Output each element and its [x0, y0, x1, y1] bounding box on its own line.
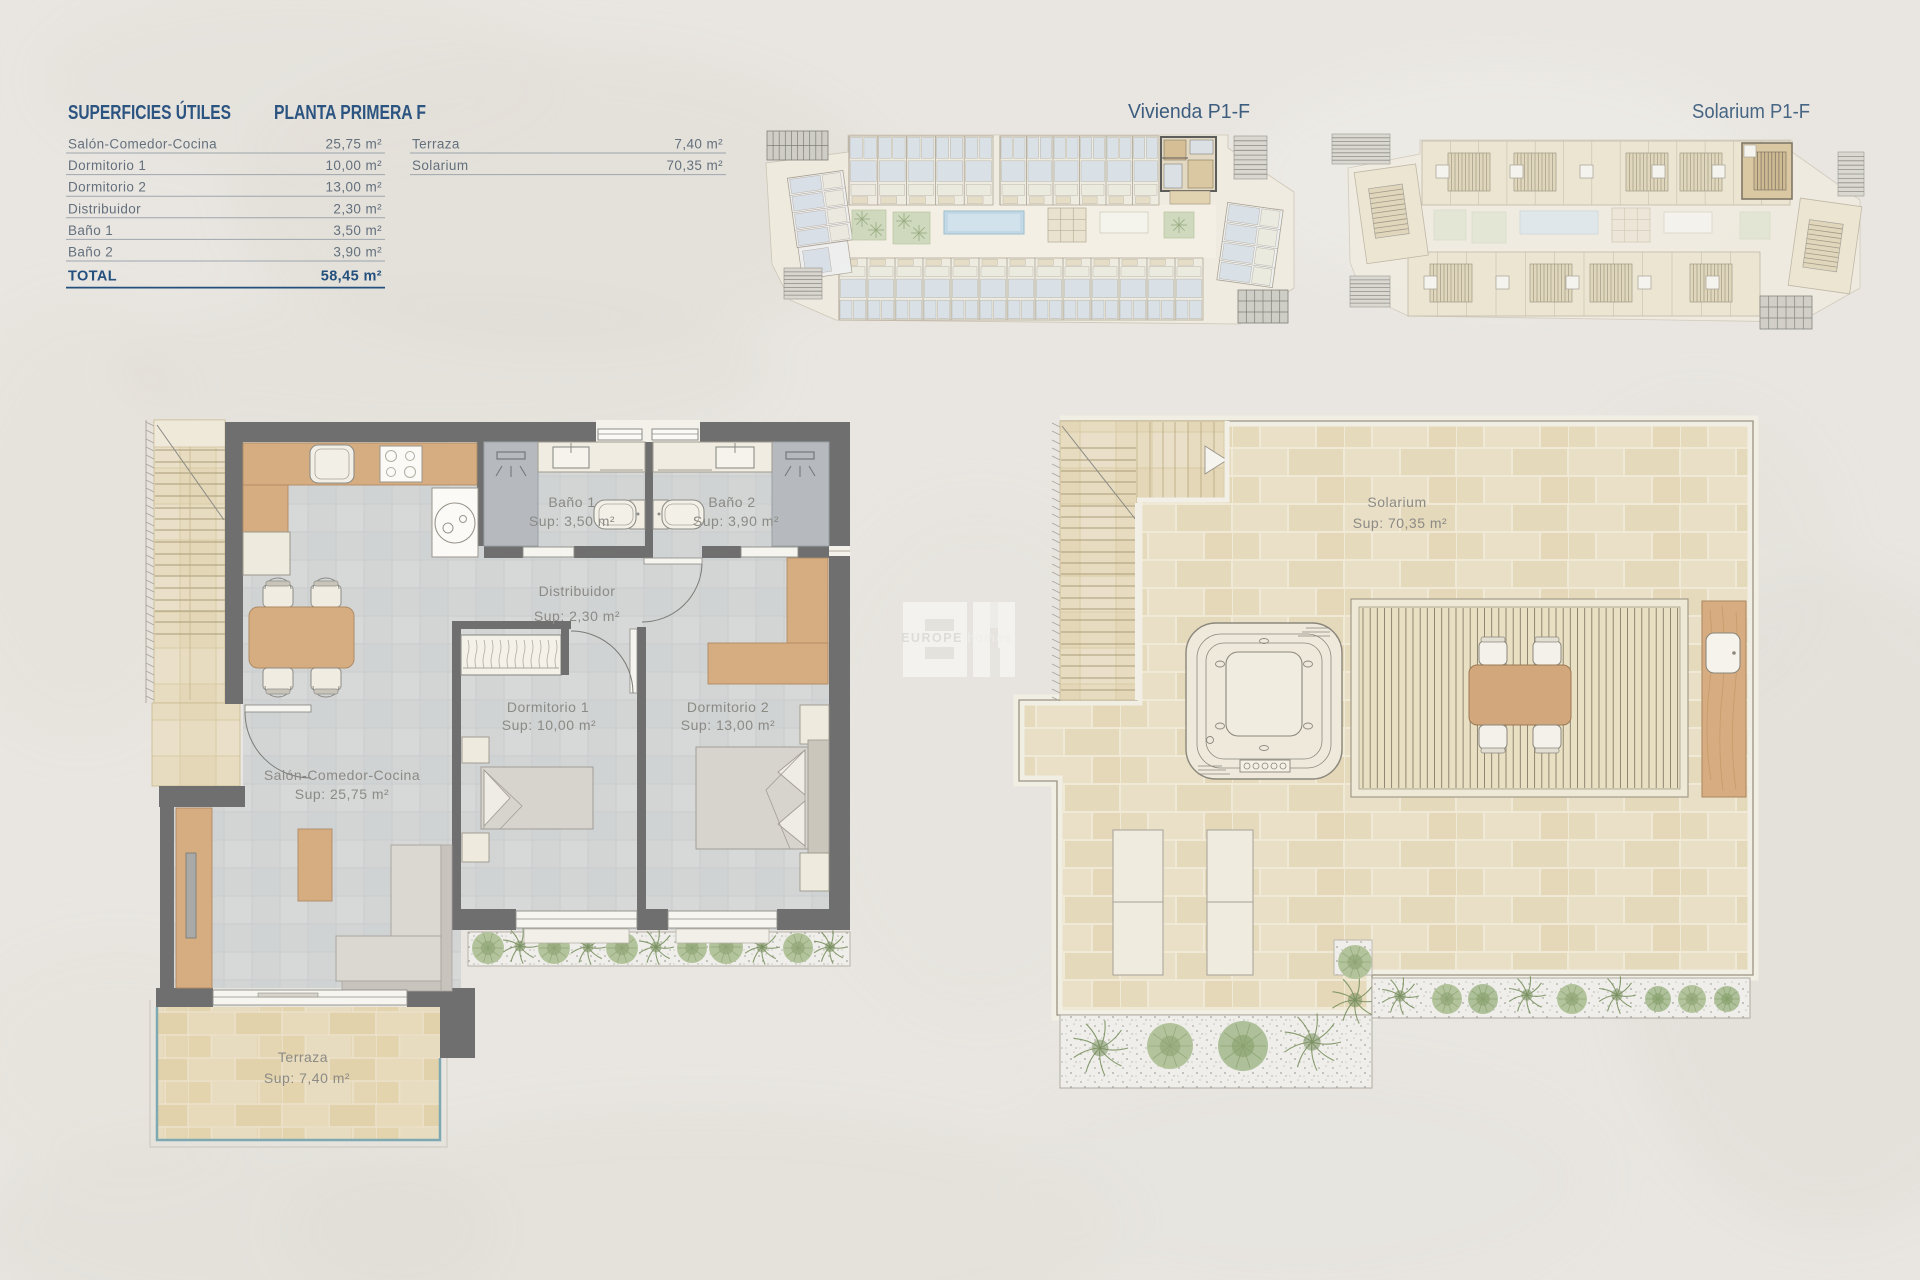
- svg-text:EUROPE: EUROPE: [901, 631, 963, 645]
- svg-text:Baño 1: Baño 1: [548, 494, 595, 510]
- svg-text:homes: homes: [967, 631, 1012, 645]
- svg-text:Sup: 7,40 m²: Sup: 7,40 m²: [264, 1070, 350, 1086]
- svg-text:Dormitorio 2: Dormitorio 2: [687, 699, 769, 715]
- svg-text:Dormitorio 1: Dormitorio 1: [68, 158, 146, 173]
- svg-text:Baño 2: Baño 2: [708, 494, 755, 510]
- svg-text:Vivienda P1-F: Vivienda P1-F: [1128, 101, 1250, 123]
- svg-text:Salón-Comedor-Cocina: Salón-Comedor-Cocina: [264, 767, 420, 783]
- svg-text:3,90 m²: 3,90 m²: [333, 245, 382, 260]
- svg-text:Solarium: Solarium: [412, 158, 468, 173]
- svg-text:25,75 m²: 25,75 m²: [326, 137, 383, 152]
- svg-text:Sup: 2,30 m²: Sup: 2,30 m²: [534, 608, 620, 624]
- svg-text:Solarium P1-F: Solarium P1-F: [1692, 101, 1810, 123]
- svg-text:Distribuidor: Distribuidor: [539, 583, 616, 599]
- svg-text:Dormitorio 1: Dormitorio 1: [507, 699, 589, 715]
- svg-text:10,00 m²: 10,00 m²: [326, 158, 383, 173]
- svg-text:Sup: 10,00 m²: Sup: 10,00 m²: [502, 717, 596, 733]
- svg-text:7,40 m²: 7,40 m²: [674, 137, 723, 152]
- svg-text:Distribuidor: Distribuidor: [68, 201, 141, 216]
- svg-text:Sup: 25,75 m²: Sup: 25,75 m²: [295, 786, 389, 802]
- svg-text:SUPERFICIES ÚTILES: SUPERFICIES ÚTILES: [68, 100, 231, 124]
- svg-text:3,50 m²: 3,50 m²: [333, 223, 382, 238]
- svg-text:Sup: 3,50 m²: Sup: 3,50 m²: [529, 513, 615, 529]
- svg-text:58,45 m²: 58,45 m²: [321, 269, 382, 285]
- svg-text:70,35 m²: 70,35 m²: [667, 158, 724, 173]
- svg-text:Sup: 13,00 m²: Sup: 13,00 m²: [681, 717, 775, 733]
- svg-text:2,30 m²: 2,30 m²: [333, 201, 382, 216]
- svg-text:Baño 1: Baño 1: [68, 223, 113, 238]
- svg-text:Salón-Comedor-Cocina: Salón-Comedor-Cocina: [68, 137, 217, 152]
- svg-text:PLANTA PRIMERA F: PLANTA PRIMERA F: [274, 102, 426, 124]
- svg-text:Sup: 70,35 m²: Sup: 70,35 m²: [1353, 515, 1447, 531]
- svg-text:13,00 m²: 13,00 m²: [326, 180, 383, 195]
- svg-text:Terraza: Terraza: [412, 137, 460, 152]
- svg-text:Baño 2: Baño 2: [68, 245, 113, 260]
- svg-text:Terraza: Terraza: [278, 1049, 328, 1065]
- svg-text:Sup: 3,90 m²: Sup: 3,90 m²: [693, 513, 779, 529]
- svg-text:TOTAL: TOTAL: [68, 269, 117, 285]
- svg-text:Dormitorio 2: Dormitorio 2: [68, 180, 146, 195]
- svg-text:Solarium: Solarium: [1367, 494, 1426, 510]
